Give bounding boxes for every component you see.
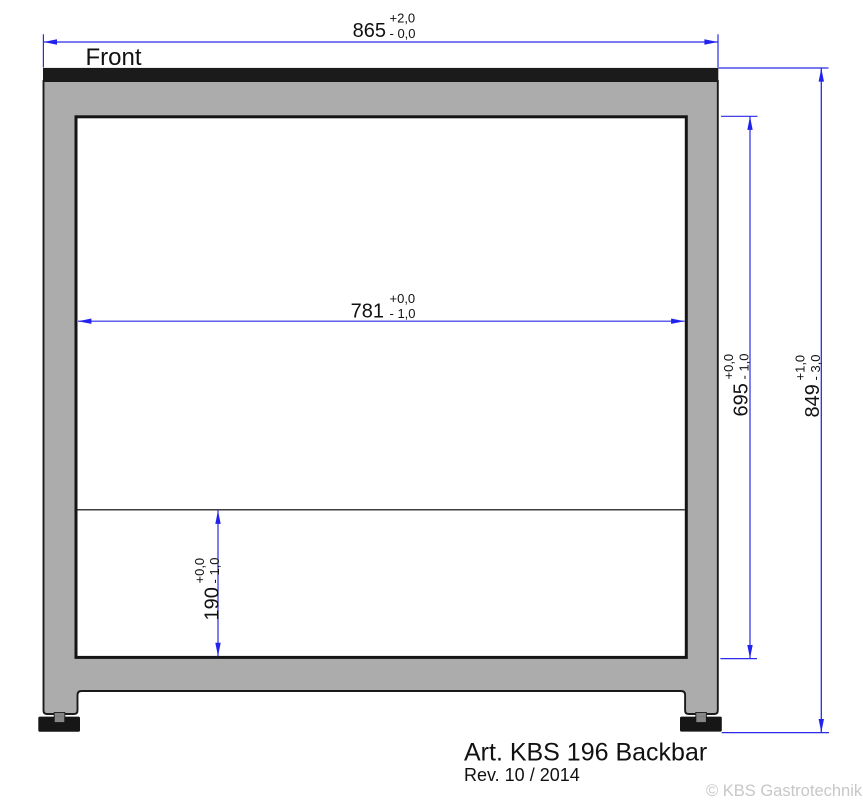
svg-text:849: 849 (802, 384, 824, 417)
svg-text:781: 781 (351, 300, 384, 322)
svg-text:+2,0: +2,0 (390, 11, 416, 26)
svg-text:- 1,0: - 1,0 (736, 353, 751, 379)
svg-text:695: 695 (731, 383, 753, 416)
svg-text:+0,0: +0,0 (192, 558, 207, 584)
svg-text:190: 190 (201, 587, 223, 620)
svg-text:- 1,0: - 1,0 (390, 306, 416, 321)
svg-text:+1,0: +1,0 (793, 355, 808, 381)
svg-text:Front: Front (86, 44, 142, 71)
svg-text:- 1,0: - 1,0 (207, 557, 222, 583)
svg-text:Art. KBS 196 Backbar: Art. KBS 196 Backbar (464, 739, 707, 767)
svg-text:Rev. 10 / 2014: Rev. 10 / 2014 (464, 765, 580, 785)
svg-text:- 3,0: - 3,0 (808, 354, 823, 380)
svg-text:© KBS Gastrotechnik: © KBS Gastrotechnik (706, 782, 863, 800)
svg-text:+0,0: +0,0 (721, 354, 736, 380)
svg-text:- 0,0: - 0,0 (390, 26, 416, 41)
svg-text:+0,0: +0,0 (390, 291, 416, 306)
svg-text:865: 865 (353, 20, 386, 42)
